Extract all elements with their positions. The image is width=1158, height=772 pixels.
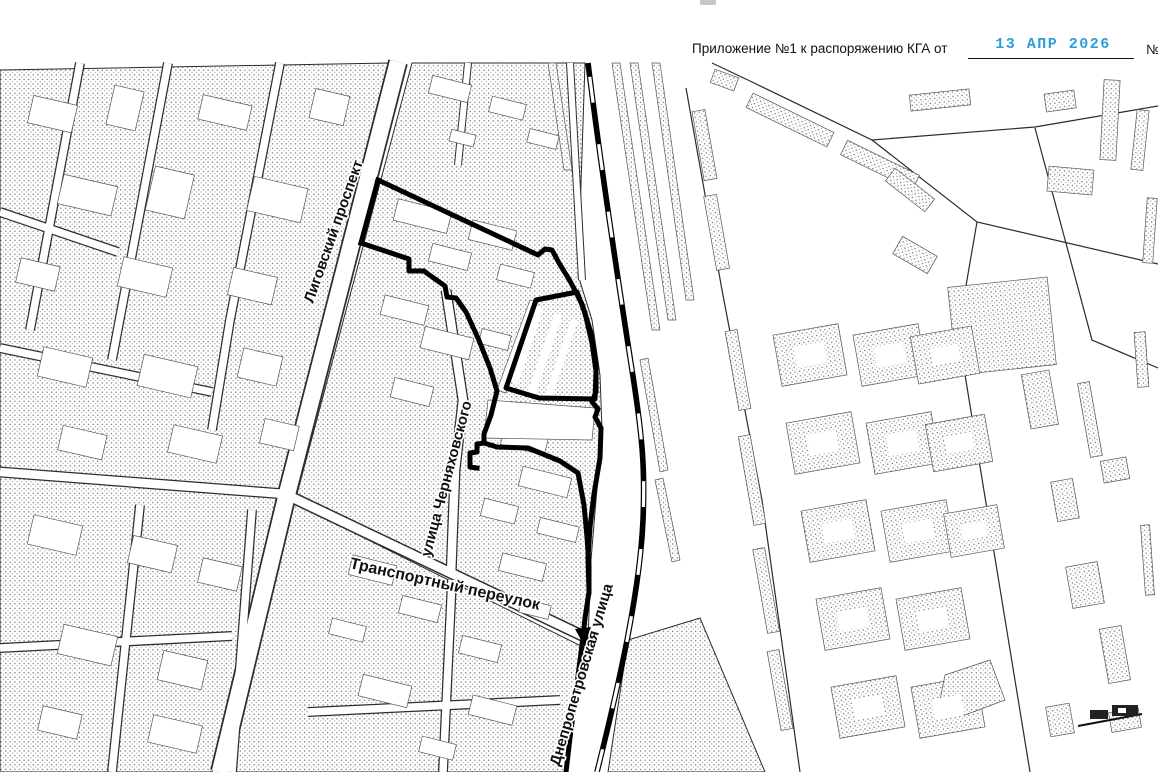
plan-document: Лиговский проспект улица Черняховского Т… [0, 0, 1158, 772]
block-southeast [608, 618, 765, 772]
east-buildings [692, 69, 1157, 738]
number-sign: № [1146, 42, 1158, 57]
header-label: Приложение №1 к распоряжению КГА от [692, 41, 947, 56]
city-map: Лиговский проспект улица Черняховского Т… [0, 0, 1158, 772]
date-stamp: 13 АПР 2026 [988, 36, 1118, 53]
